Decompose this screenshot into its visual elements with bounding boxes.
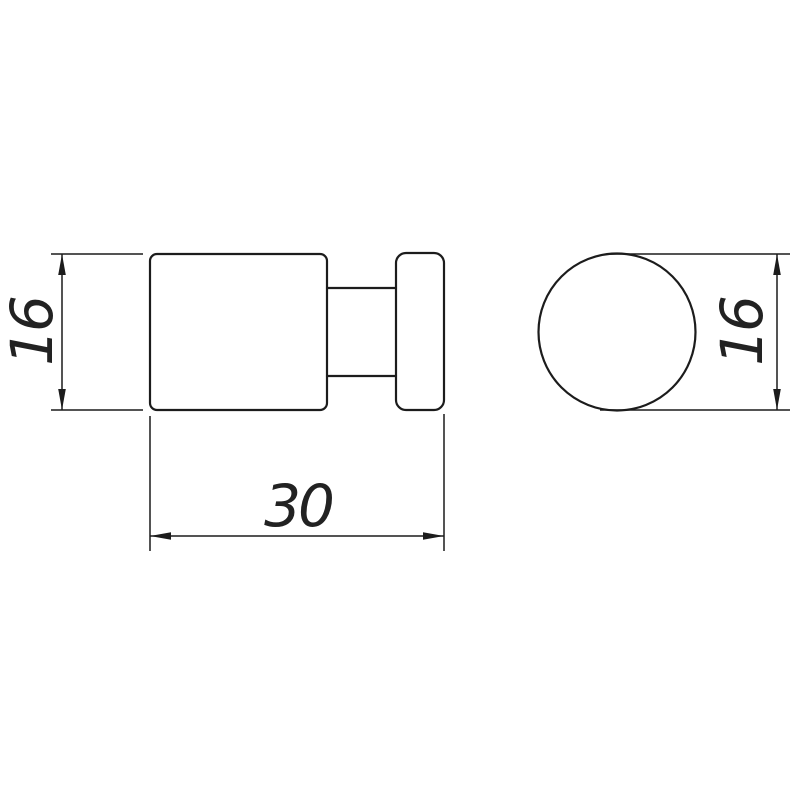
hook-flange-outline — [396, 253, 444, 410]
dimension-side-length: 30 — [150, 414, 444, 551]
side-view — [150, 253, 444, 410]
technical-drawing-canvas: 16 30 16 — [0, 0, 800, 800]
arrowhead-left — [150, 532, 171, 540]
arrowhead-up — [773, 254, 781, 275]
front-view-circle — [539, 254, 696, 411]
front-view — [539, 254, 696, 411]
arrowhead-up — [58, 254, 66, 275]
hook-body-outline — [150, 254, 327, 410]
dimension-label-side-length: 30 — [264, 472, 332, 540]
dimension-label-front-diameter: 16 — [708, 297, 776, 366]
arrowhead-down — [773, 389, 781, 410]
dimension-side-height: 16 — [0, 254, 143, 410]
dimension-label-side-height: 16 — [0, 297, 66, 366]
drawing-page: 16 30 16 — [0, 0, 800, 800]
arrowhead-right — [423, 532, 444, 540]
arrowhead-down — [58, 389, 66, 410]
